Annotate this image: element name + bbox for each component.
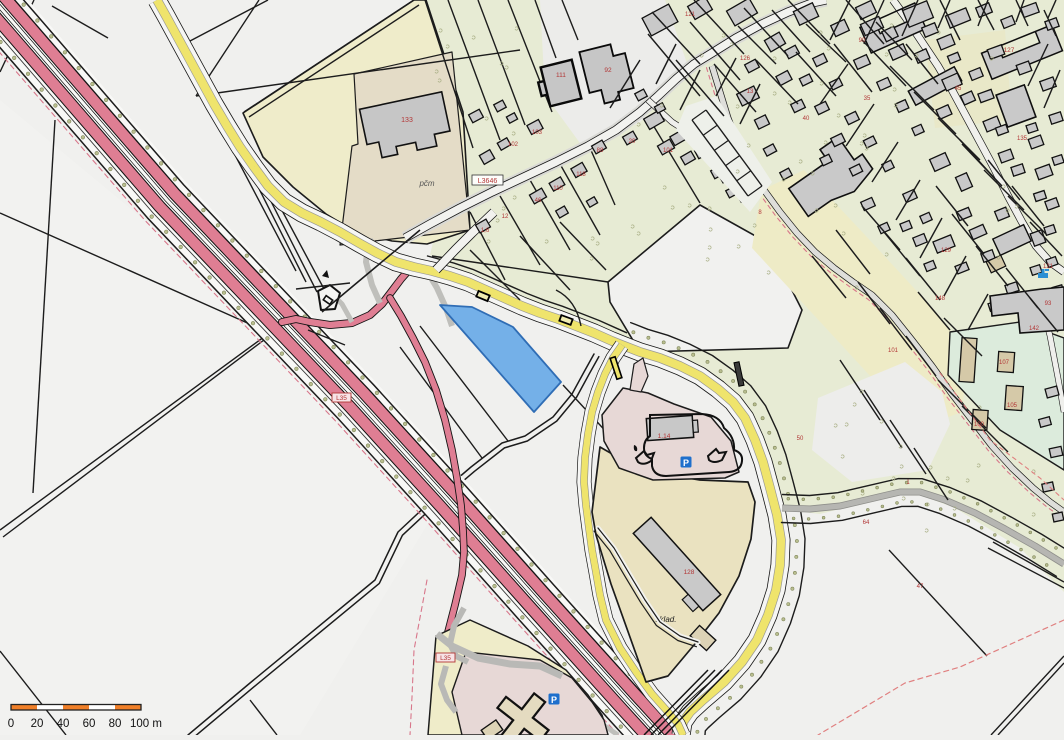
svg-text:128: 128 — [684, 569, 695, 576]
svg-text:148: 148 — [935, 296, 946, 302]
svg-text:92: 92 — [604, 67, 612, 74]
svg-text:103: 103 — [532, 130, 543, 136]
svg-text:101: 101 — [888, 348, 899, 354]
svg-text:1,6: 1,6 — [481, 228, 490, 234]
svg-text:102: 102 — [508, 142, 519, 148]
svg-text:80: 80 — [109, 718, 122, 730]
svg-text:47: 47 — [917, 584, 924, 590]
svg-text:13: 13 — [747, 89, 754, 95]
svg-text:142: 142 — [1029, 326, 1040, 332]
svg-text:88: 88 — [597, 148, 604, 154]
svg-text:40: 40 — [803, 116, 810, 122]
svg-text:20: 20 — [31, 718, 44, 730]
svg-text:35: 35 — [864, 96, 871, 102]
svg-text:111: 111 — [556, 72, 566, 79]
svg-text:50: 50 — [797, 436, 804, 442]
svg-text:121: 121 — [685, 12, 696, 18]
svg-text:101: 101 — [663, 148, 674, 154]
svg-text:118: 118 — [576, 172, 586, 178]
svg-text:pčm: pčm — [418, 179, 434, 188]
svg-text:L35: L35 — [336, 395, 347, 402]
svg-text:46: 46 — [535, 198, 542, 204]
svg-text:12: 12 — [502, 214, 509, 220]
svg-text:40: 40 — [57, 718, 70, 730]
svg-text:127: 127 — [1004, 47, 1015, 54]
svg-text:60: 60 — [83, 718, 96, 730]
svg-text:110: 110 — [553, 186, 563, 192]
svg-text:90: 90 — [859, 38, 866, 44]
svg-text:20: 20 — [629, 139, 636, 145]
svg-text:100 m: 100 m — [130, 718, 162, 730]
svg-text:93: 93 — [1045, 301, 1052, 307]
svg-text:126: 126 — [740, 56, 751, 62]
svg-text:P: P — [683, 458, 689, 468]
svg-text:45: 45 — [955, 86, 962, 92]
svg-text:64: 64 — [863, 520, 870, 526]
svg-text:L35: L35 — [440, 655, 451, 662]
svg-text:105: 105 — [1007, 403, 1018, 409]
svg-text:129: 129 — [941, 248, 952, 254]
svg-text:1.14: 1.14 — [658, 433, 671, 440]
svg-text:133: 133 — [401, 117, 413, 124]
svg-text:0: 0 — [8, 718, 14, 730]
svg-text:L3646: L3646 — [478, 178, 498, 185]
svg-text:135: 135 — [1017, 136, 1028, 142]
svg-text:P: P — [551, 695, 557, 705]
svg-text:107: 107 — [999, 360, 1010, 366]
